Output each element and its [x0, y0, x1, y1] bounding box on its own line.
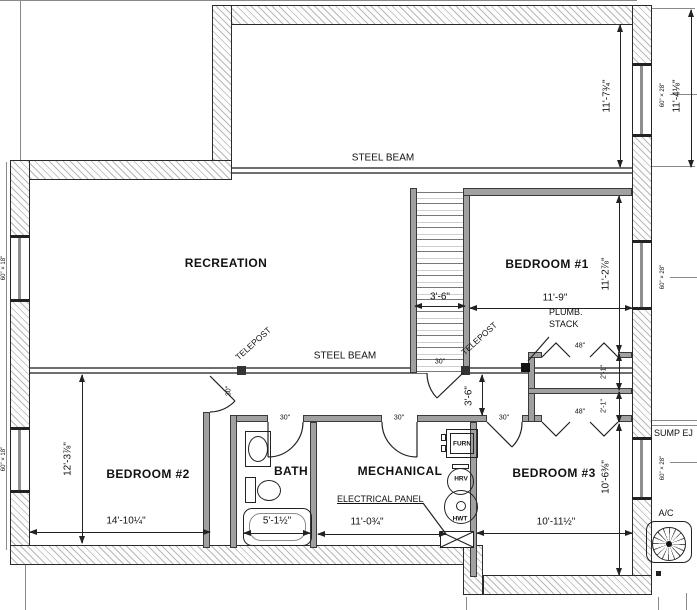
extension-line-bottom-mid: [466, 597, 467, 610]
dim-closet-lower: 2'-1": [601, 399, 608, 413]
closet-size-upper: 48": [575, 343, 585, 350]
extension-line-top: [0, 0, 637, 1]
stair-wall-left: [410, 188, 417, 373]
dim-line-top-right-inner: [620, 25, 621, 167]
dim-bedroom3-height: 10'-6⅜": [601, 460, 612, 494]
electrical-panel-label: ELECTRICAL PANEL: [337, 494, 424, 504]
extension-line-bottom-right2: [686, 593, 687, 610]
dim-line-closet-lower: [619, 392, 620, 422]
bath-sink: [248, 436, 268, 462]
dim-hall-width: 3'-6": [464, 386, 475, 406]
ac-fan-hub: [666, 541, 672, 547]
dim-line-hall-width: [482, 375, 483, 415]
window-b-leader: [670, 277, 697, 278]
closet-size-lower: 48": [575, 409, 585, 416]
mechanical-door: [382, 422, 417, 457]
bath-door: [268, 422, 303, 457]
dim-line-bedroom3-height: [619, 424, 620, 575]
window-c-leader: [670, 462, 697, 463]
dim-line-mech-width: [318, 534, 446, 535]
hall-wall-seg3: [417, 415, 487, 422]
wall-top: [212, 5, 652, 25]
hwt-label: HWT: [453, 516, 468, 523]
dim-bedroom1-width: 11'-9": [543, 293, 568, 304]
dim-line-bedroom2-height: [82, 375, 83, 543]
staircase: [417, 192, 463, 373]
dim-mech-width: 11'-0¾": [350, 517, 383, 528]
bedroom3-door: [487, 422, 522, 447]
closet-bifold-lower: [542, 422, 618, 436]
window-bedroom3: [632, 437, 652, 500]
window-bedroom1: [632, 240, 652, 310]
dim-line-top-right-outer: [691, 10, 692, 167]
door-size-stairs: 30": [435, 359, 445, 366]
sump-ejector-label: SUMP EJ: [654, 428, 693, 438]
dim-bedroom3-width: 10'-11½": [537, 517, 576, 528]
dim-bedroom2-height: 12'-3⅞": [63, 442, 74, 476]
dim-top-right-inner: 11'-7¾": [602, 79, 613, 112]
steel-beam-top-label: STEEL BEAM: [352, 153, 414, 164]
window-size-top-room: 60" × 28": [660, 83, 666, 107]
plumb-stack-label-1: PLUMB.: [549, 307, 583, 317]
dim-top-right-outer: 11'-4⅛": [672, 79, 683, 112]
telepost-right-symbol: [461, 366, 470, 375]
room-label-recreation: RECREATION: [185, 256, 267, 270]
room-label-bedroom3: BEDROOM #3: [512, 466, 595, 480]
room-label-bedroom2: BEDROOM #2: [106, 467, 189, 481]
dim-bedroom1-height: 11'-2⅞": [601, 257, 612, 290]
window-recreation: [10, 235, 30, 302]
sump-line-2: [652, 425, 697, 426]
dim-stair-width: 3'-6": [430, 292, 450, 303]
sump-line-1: [652, 420, 697, 421]
furnace-label: FURN: [453, 441, 471, 448]
closet-top-seg1: [528, 352, 542, 358]
basement-floor-plan: FURN HRV HWT RECREATION: [0, 0, 697, 610]
steel-beam-mid-label: STEEL BEAM: [314, 351, 376, 362]
window-size-recreation: 60" × 18": [1, 256, 7, 280]
hrv-label: HRV: [454, 476, 468, 483]
room-label-mechanical: MECHANICAL: [358, 464, 443, 478]
extension-line-left-v: [6, 162, 7, 550]
extension-line-topleft-v: [20, 0, 21, 160]
extension-line-bottom-right1: [658, 597, 659, 610]
steel-beam-mid-left: [30, 367, 427, 374]
linework-overlay: [0, 0, 697, 610]
hall-wall-seg2: [303, 415, 382, 422]
dim-line-bedroom2-width: [30, 532, 210, 533]
window-size-bedroom2: 60" × 18": [1, 447, 7, 471]
cleanout-symbol: [656, 571, 661, 576]
wall-bottom-main: [10, 545, 483, 565]
window-bedroom2: [10, 427, 30, 493]
dim-line-closet-upper: [619, 354, 620, 390]
door-size-bedroom3: 30": [499, 415, 509, 422]
ac-label: A/C: [658, 508, 673, 518]
telepost-left-label: TELEPOST: [233, 325, 273, 362]
bedroom2-right-wall: [203, 412, 210, 548]
door-size-bath: 30": [280, 415, 290, 422]
plumb-stack-label-2: STACK: [549, 319, 578, 329]
room-label-bath: BATH: [274, 464, 308, 478]
toilet-tank: [245, 477, 256, 503]
plumb-stack-symbol: [521, 363, 530, 372]
window-size-bedroom3: 60" × 28": [660, 456, 666, 480]
window-top-room: [632, 63, 652, 137]
door-size-mechanical: 30": [394, 415, 404, 422]
electrical-panel-leader: [423, 503, 446, 534]
dim-line-stair-width: [415, 306, 465, 307]
window-size-bedroom1: 60" × 28": [660, 265, 666, 289]
hall-wall-seg1: [233, 415, 268, 422]
wall-upper-left-vertical: [212, 5, 232, 180]
bath-wall-left: [230, 415, 237, 548]
steel-beam-top: [232, 167, 632, 174]
hwt-burner: [456, 501, 466, 511]
dim-bath-width: 5'-1½": [263, 516, 291, 527]
furnace-tab1: [441, 434, 446, 441]
stairs-door: [427, 373, 463, 398]
wall-step-horizontal: [10, 160, 232, 180]
bedroom1-top-wall: [463, 188, 632, 196]
dim-line-bedroom3-width: [477, 533, 632, 534]
wall-bottom-bedroom3: [483, 575, 652, 595]
furnace-tab2: [441, 445, 446, 452]
room-label-bedroom1: BEDROOM #1: [505, 257, 588, 271]
door-size-bedroom2: 30": [226, 386, 233, 396]
telepost-left-symbol: [237, 366, 246, 375]
dim-line-bedroom1-height: [619, 196, 620, 352]
extension-line-bottomleft: [25, 565, 26, 610]
toilet-bowl: [257, 480, 281, 501]
dim-bedroom2-width: 14'-10¼": [106, 516, 145, 527]
dim-closet-upper: 2'-1": [601, 365, 608, 379]
dim-line-bath-width: [244, 533, 310, 534]
